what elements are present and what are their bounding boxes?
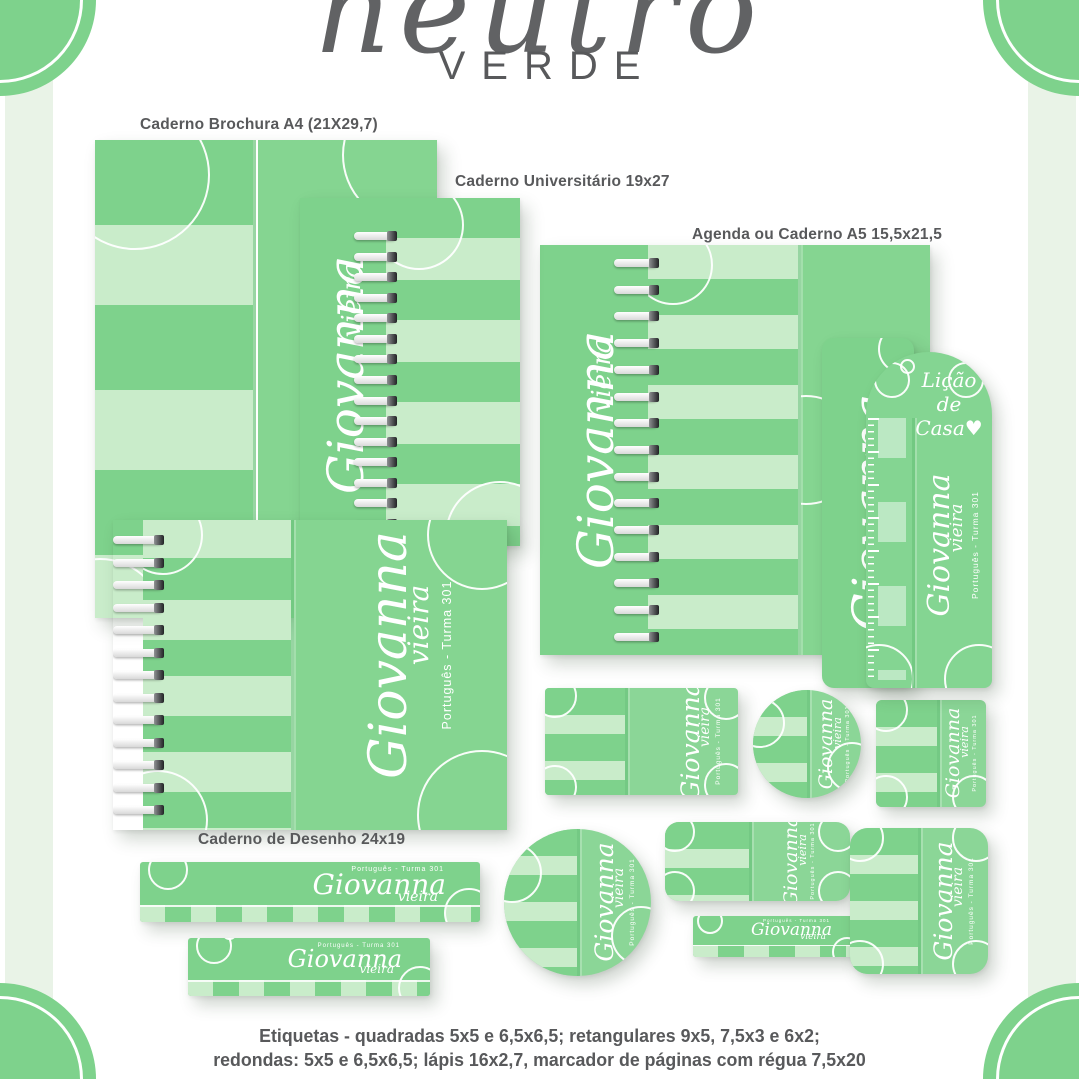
spiral-coil [113, 626, 163, 634]
size-specs-line2: redondas: 5x5 e 6,5x6,5; lápis 16x2,7, m… [22, 1048, 1058, 1072]
spiral-coil [113, 671, 163, 679]
spiral-coil [614, 259, 658, 267]
spiral-coil [113, 536, 163, 544]
spiral-coil [614, 579, 658, 587]
label-rectangular-7x5x3: Giovanna vieira Português - Turma 301 [665, 822, 850, 901]
monogram-block: Giovanna vieira Português - Turma 301 [571, 331, 615, 569]
desenho-monogram: Giovanna vieira Português - Turma 301 [343, 525, 473, 785]
desenho-spiral-binding [113, 536, 163, 814]
label-strip-monogram: Giovanna vieira Português - Turma 301 [751, 919, 832, 942]
spiral-coil [614, 339, 658, 347]
universitario-spiral-binding [354, 232, 396, 528]
class-info-text: Português - Turma 301 [973, 714, 979, 791]
label-square-large-monogram: Giovanna vieira Português - Turma 301 [925, 836, 981, 966]
caption-agenda-a5: Agenda ou Caderno A5 15,5x21,5 [692, 226, 942, 244]
bookmark-ruler-scale [868, 418, 882, 680]
student-surname-script: vieira [797, 834, 808, 866]
right-frame-band [1028, 0, 1076, 1079]
spiral-coil [113, 649, 163, 657]
student-surname-script: vieira [612, 868, 626, 908]
student-surname-script: vieira [589, 338, 615, 413]
label-round-small-monogram: Giovanna vieira Português - Turma 301 [811, 696, 857, 792]
monogram-block: Giovanna vieira Português - Turma 301 [925, 474, 980, 617]
spiral-coil [614, 499, 658, 507]
spiral-coil [614, 312, 658, 320]
size-specs-footer: Etiquetas - quadradas 5x5 e 6,5x6,5; ret… [0, 1024, 1079, 1072]
monogram-block: Giovanna vieira Português - Turma 301 [288, 943, 402, 975]
bookmark-monogram: Giovanna vieira Português - Turma 301 [907, 445, 992, 645]
notebook-universitario: Giovanna vieira Português - Turma 301 [300, 198, 520, 546]
student-surname-script: vieira [949, 504, 966, 553]
spiral-coil [113, 581, 163, 589]
label-square-6x5: Giovanna vieira Português - Turma 301 [850, 828, 988, 974]
student-surname-script: vieira [698, 707, 712, 747]
spiral-coil [354, 335, 396, 343]
agenda-striped-cover [648, 245, 798, 655]
spiral-coil [354, 397, 396, 405]
desenho-striped-cover [143, 520, 291, 830]
label-rectangular-9x5: Giovanna vieira Português - Turma 301 [545, 688, 738, 795]
pencil-label-large: Giovanna vieira Português - Turma 301 [140, 862, 480, 922]
caption-caderno-brochura: Caderno Brochura A4 (21X29,7) [140, 116, 378, 134]
agenda-spiral-binding [614, 259, 658, 641]
spiral-coil [354, 376, 396, 384]
student-surname-script: vieira [951, 867, 965, 907]
size-specs-line1: Etiquetas - quadradas 5x5 e 6,5x6,5; ret… [22, 1024, 1058, 1048]
student-surname-script: vieira [832, 717, 843, 749]
bookmark-ruler-blocks [878, 418, 906, 680]
spiral-coil [113, 761, 163, 769]
label-strip-6x2: Giovanna vieira Português - Turma 301 [693, 916, 854, 957]
bookmark-title: Lição de Casa♥ [906, 368, 992, 440]
spiral-coil [113, 806, 163, 814]
class-info-text: Português - Turma 301 [971, 491, 980, 599]
spiral-coil [614, 419, 658, 427]
left-frame-band [5, 0, 53, 1079]
bookmark-licao-de-casa: Lição de Casa♥ Giovanna vieira Português… [866, 352, 992, 688]
spiral-coil [354, 253, 396, 261]
label-square-small-monogram: Giovanna vieira Português - Turma 301 [937, 705, 985, 801]
spiral-coil [354, 417, 396, 425]
label-rrect-monogram: Giovanna vieira Português - Turma 301 [771, 824, 827, 898]
spiral-coil [354, 355, 396, 363]
spiral-coil [354, 314, 396, 322]
spiral-coil [113, 784, 163, 792]
spiral-coil [354, 458, 396, 466]
spiral-coil [113, 604, 163, 612]
monogram-block: Giovanna vieira Português - Turma 301 [592, 842, 637, 961]
spiral-coil [614, 606, 658, 614]
spiral-coil [354, 232, 396, 240]
class-info-text: Português - Turma 301 [716, 697, 723, 784]
student-surname-script: vieira [959, 726, 970, 758]
spiral-coil [614, 446, 658, 454]
student-surname-script: vieira [405, 585, 433, 665]
label-square-5x5: Giovanna vieira Português - Turma 301 [876, 700, 986, 807]
collection-color-name: VERDE [0, 44, 1079, 89]
spiral-coil [614, 553, 658, 561]
monogram-block: Giovanna vieira Português - Turma 301 [363, 531, 454, 779]
bookmark-title-line2: de Casa♥ [906, 392, 992, 440]
label-round-6x5: Giovanna vieira Português - Turma 301 [504, 829, 651, 976]
class-info-text: Português - Turma 301 [630, 858, 637, 945]
class-info-text: Português - Turma 301 [811, 822, 817, 899]
caption-caderno-universitario: Caderno Universitário 19x27 [455, 173, 670, 191]
spiral-coil [354, 294, 396, 302]
class-info-text: Português - Turma 301 [969, 857, 976, 944]
monogram-block: Giovanna vieira Português - Turma 301 [313, 866, 446, 904]
pencil-small-monogram: Giovanna vieira Português - Turma 301 [288, 943, 402, 975]
bookmark-title-line1: Lição [906, 368, 992, 392]
spiral-coil [113, 694, 163, 702]
pencil-large-monogram: Giovanna vieira Português - Turma 301 [313, 866, 446, 904]
monogram-block: Giovanna vieira Português - Turma 301 [782, 822, 817, 901]
monogram-block: Giovanna vieira Português - Turma 301 [931, 841, 976, 960]
student-surname-script: vieira [398, 890, 438, 904]
spiral-coil [614, 393, 658, 401]
universitario-striped-cover [386, 198, 520, 546]
spiral-coil [113, 739, 163, 747]
spiral-coil [354, 479, 396, 487]
stationery-mockup-poster: neutro VERDE Caderno Brochura A4 (21X29,… [0, 0, 1079, 1079]
spiral-coil [614, 366, 658, 374]
class-info-text: Português - Turma 301 [846, 705, 852, 782]
label-round-5x5: Giovanna vieira Português - Turma 301 [753, 690, 861, 798]
spiral-coil [614, 633, 658, 641]
monogram-block: Giovanna vieira Português - Turma 301 [944, 708, 979, 799]
student-surname-script: vieira [800, 933, 826, 942]
label-rect-monogram: Giovanna vieira Português - Turma 301 [672, 688, 728, 795]
spiral-coil [113, 716, 163, 724]
notebook-desenho: Giovanna vieira Português - Turma 301 [113, 520, 507, 830]
monogram-block: Giovanna vieira Português - Turma 301 [817, 699, 852, 790]
spiral-coil [354, 499, 396, 507]
pencil-label-small: Giovanna vieira Português - Turma 301 [188, 938, 430, 996]
monogram-block: Giovanna vieira Português - Turma 301 [751, 919, 832, 942]
spiral-coil [113, 559, 163, 567]
caption-caderno-desenho: Caderno de Desenho 24x19 [198, 831, 405, 849]
monogram-block: Giovanna vieira Português - Turma 301 [678, 688, 723, 795]
spiral-coil [354, 273, 396, 281]
spiral-coil [614, 473, 658, 481]
spiral-coil [354, 438, 396, 446]
spiral-coil [614, 286, 658, 294]
class-info-text: Português - Turma 301 [441, 581, 454, 730]
spiral-coil [614, 526, 658, 534]
label-round-large-monogram: Giovanna vieira Português - Turma 301 [586, 837, 642, 967]
student-surname-script: vieira [360, 963, 394, 975]
